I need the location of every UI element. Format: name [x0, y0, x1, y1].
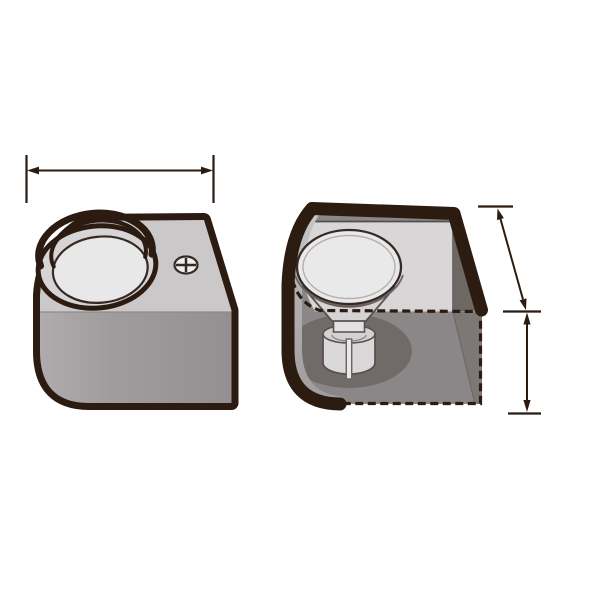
depth-arrow-bottom [520, 298, 527, 310]
height-dimension: Front height dimension [503, 312, 541, 414]
bulb-face [297, 230, 401, 304]
housing-cutaway-figure: Housing cutaway view [286, 209, 482, 405]
exterior-front-face [40, 312, 232, 404]
phillips-screw-icon [175, 257, 198, 274]
housing-exterior-figure: Housing exterior view [33, 207, 232, 403]
depth-arrow-top [497, 209, 504, 221]
depth-dimension: Top depth dimension [478, 207, 527, 311]
width-dimension: Overall width dimension [27, 155, 214, 203]
width-arrow-right [201, 167, 213, 175]
depth-dimension-line [501, 219, 524, 299]
width-arrow-left [27, 167, 39, 175]
height-arrow-top [523, 313, 530, 325]
product-dimension-diagram: Housing exterior view Housing cutaway vi… [0, 0, 600, 600]
bulb-base-slot [346, 339, 351, 379]
height-arrow-bottom [523, 400, 530, 412]
diagram-canvas: Housing exterior view Housing cutaway vi… [0, 0, 600, 600]
